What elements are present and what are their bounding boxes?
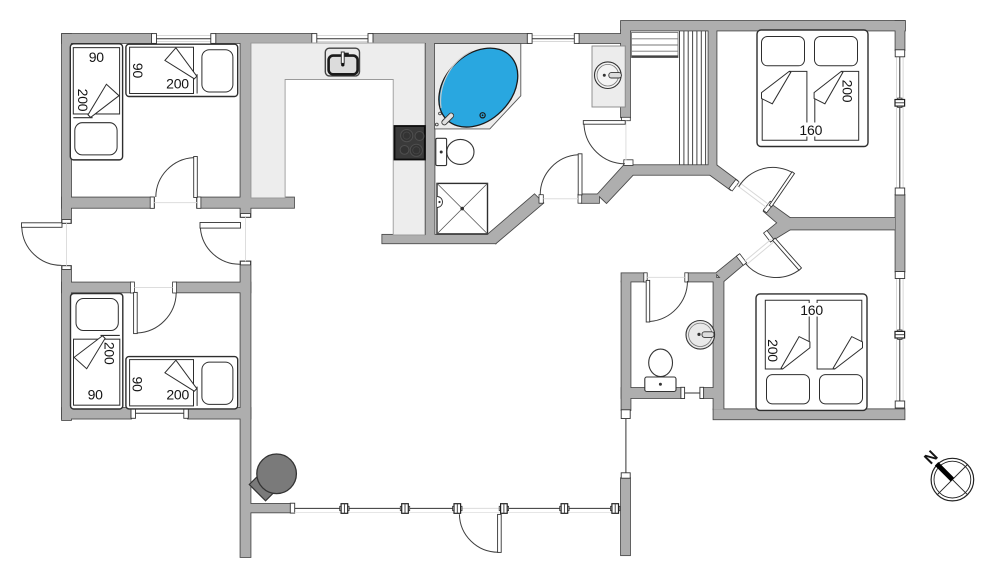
svg-text:90: 90 [89, 49, 105, 65]
svg-text:160: 160 [799, 122, 822, 138]
svg-text:90: 90 [129, 377, 145, 393]
svg-text:200: 200 [102, 342, 118, 365]
svg-text:200: 200 [166, 76, 189, 92]
svg-text:200: 200 [75, 89, 91, 112]
svg-text:200: 200 [840, 80, 856, 103]
svg-text:200: 200 [765, 339, 781, 362]
svg-text:160: 160 [800, 302, 823, 318]
svg-text:90: 90 [130, 63, 146, 79]
svg-text:90: 90 [88, 387, 104, 403]
svg-text:200: 200 [166, 387, 189, 403]
